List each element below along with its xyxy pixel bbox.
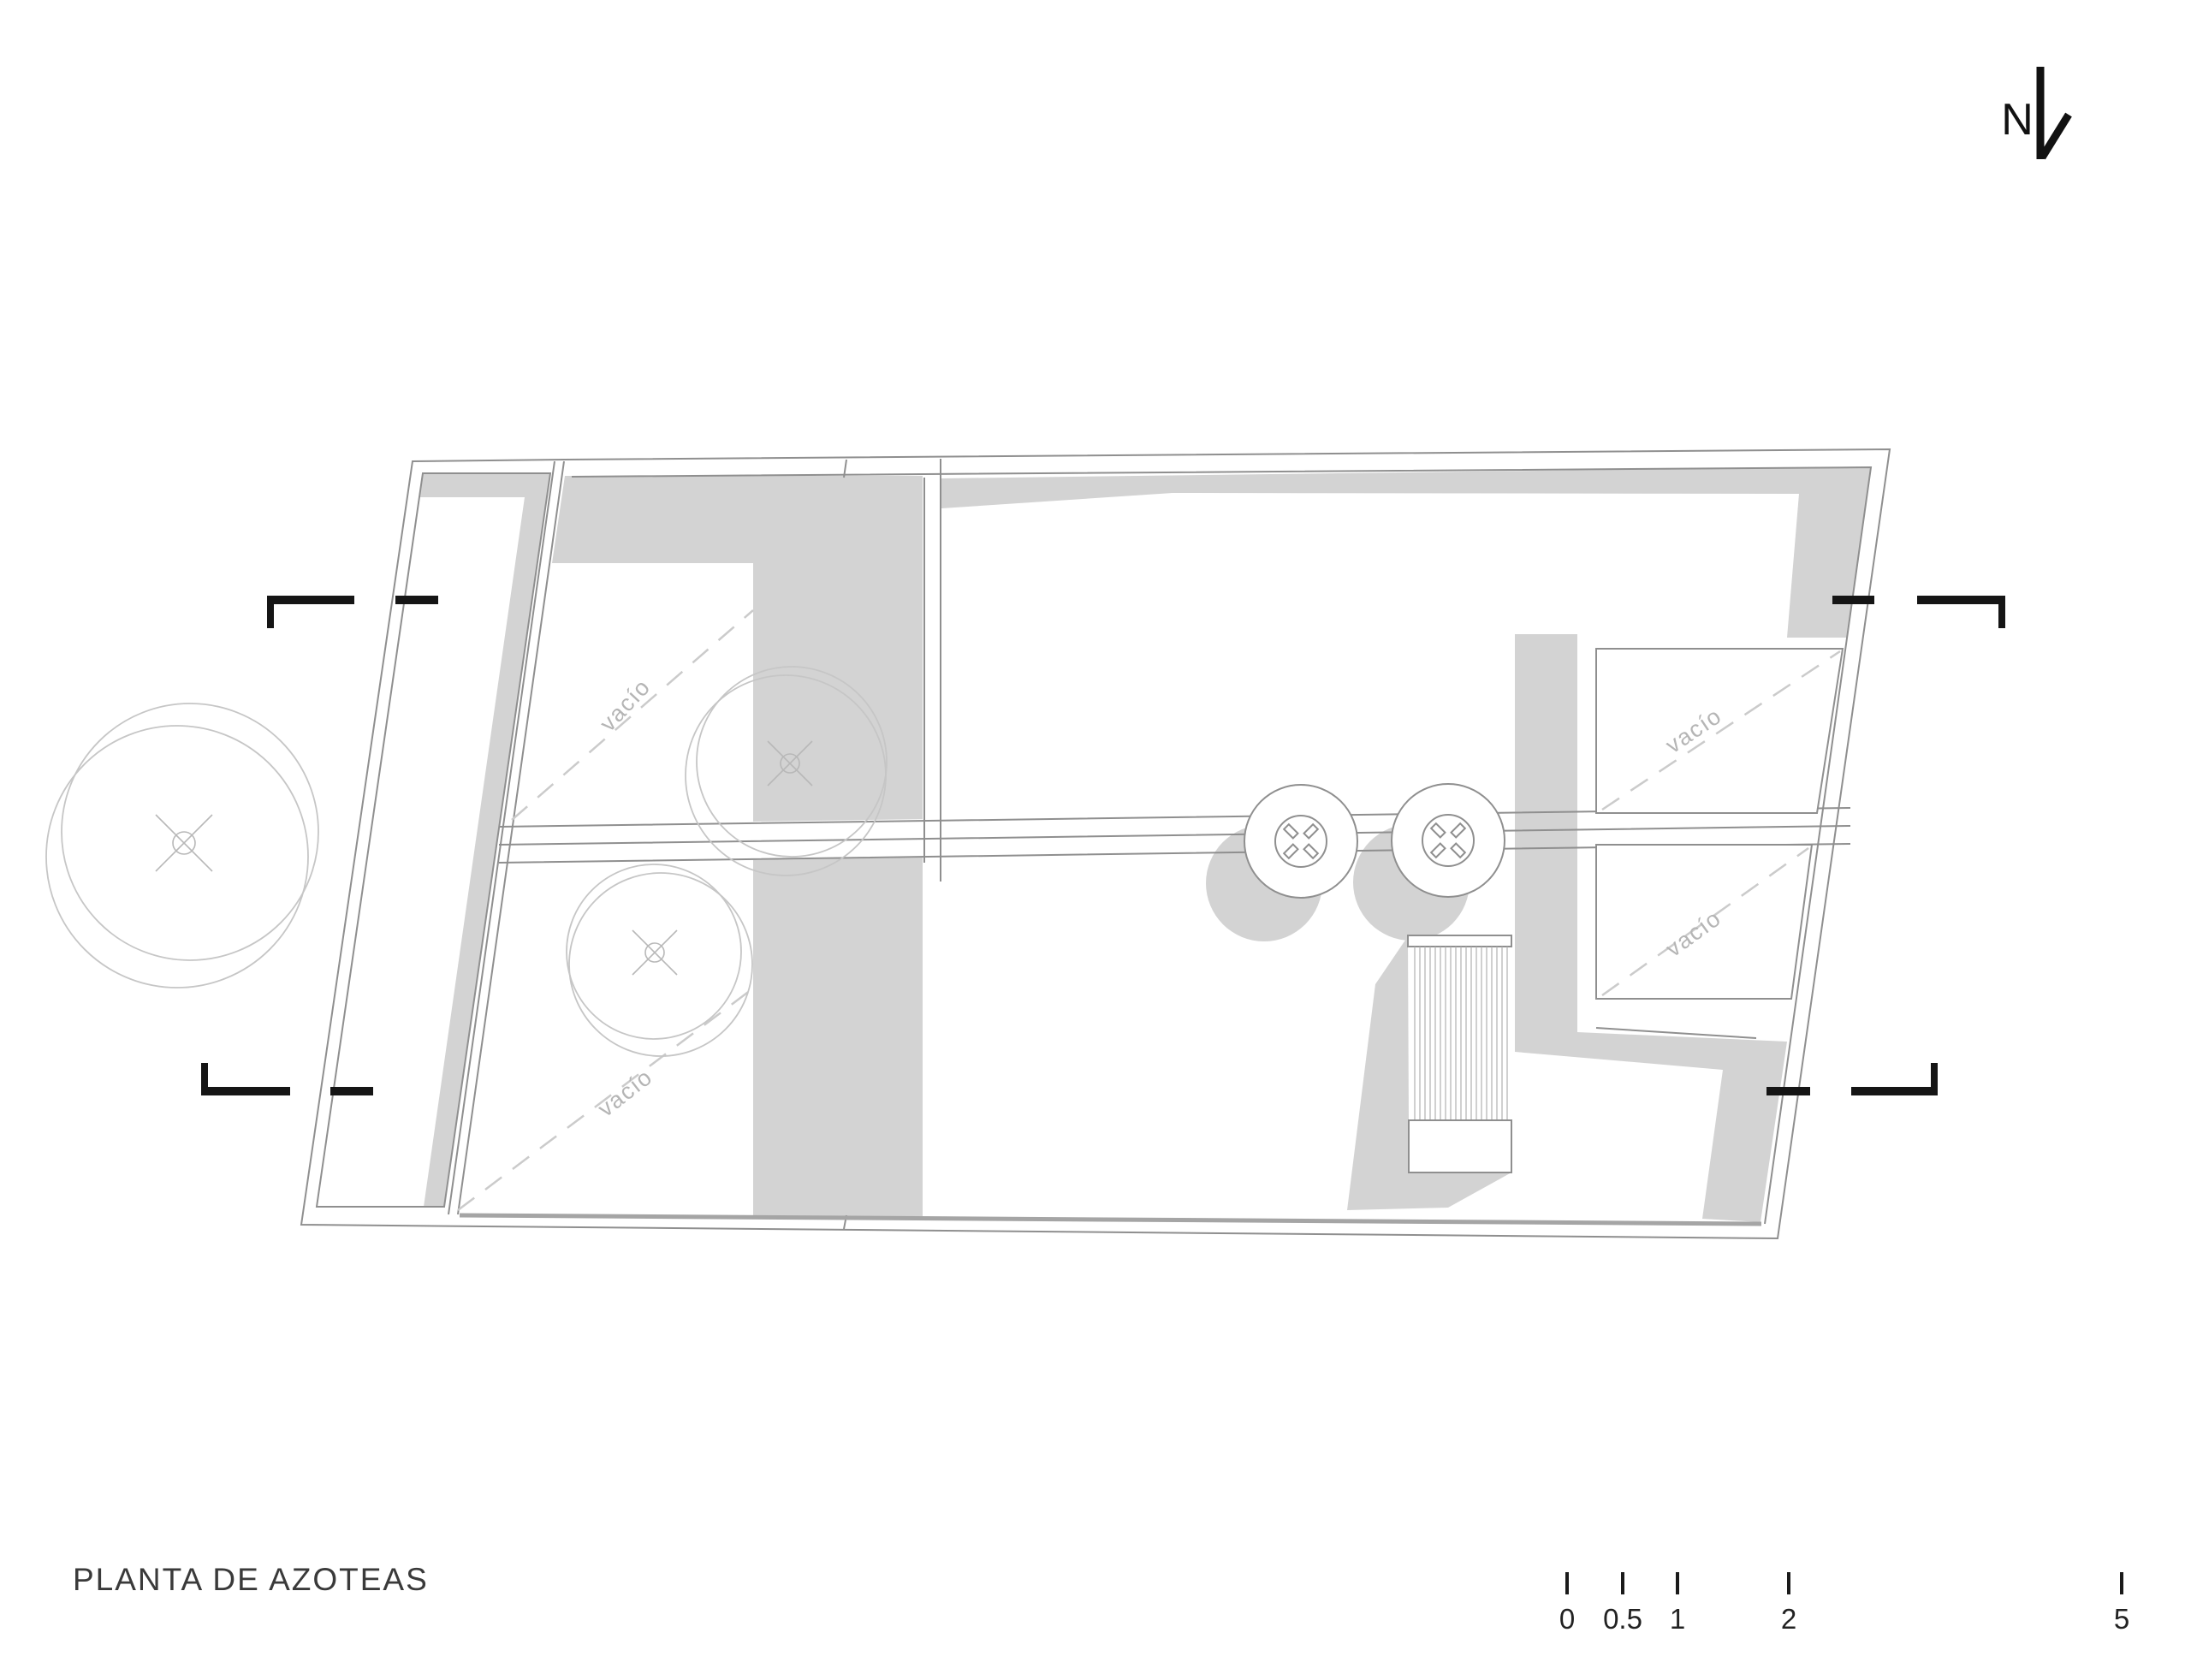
- drawing-title: PLANTA DE AZOTEAS: [73, 1562, 429, 1597]
- void-box-upper-right: [1596, 649, 1843, 813]
- roof-vent-right: [1392, 784, 1505, 897]
- north-label: N: [2001, 95, 2034, 145]
- tree-trunk-icon: [632, 930, 677, 975]
- scale-tick-label: 1: [1670, 1603, 1685, 1635]
- stair-louver: [1408, 935, 1511, 1172]
- scale-tick-label: 0: [1559, 1603, 1575, 1635]
- north-arrow-icon: N: [2001, 67, 2069, 159]
- tree-trunk-icon: [156, 815, 212, 871]
- void-label: vacío: [595, 674, 656, 736]
- void-label: vacío: [593, 1064, 657, 1122]
- scale-bar: 0 0.5 1 2 5: [1559, 1572, 2129, 1635]
- tree-canopy-lower-middle: [567, 864, 752, 1056]
- tree-canopy-large-left: [46, 703, 318, 988]
- roof-vent-left: [1244, 785, 1357, 898]
- scale-tick-label: 0.5: [1603, 1603, 1642, 1635]
- roof-plan-drawing: N vacío vacío vacío vacío PLANTA DE AZOT…: [0, 0, 2191, 1680]
- scale-tick-label: 5: [2114, 1603, 2129, 1635]
- scale-tick-label: 2: [1781, 1603, 1796, 1635]
